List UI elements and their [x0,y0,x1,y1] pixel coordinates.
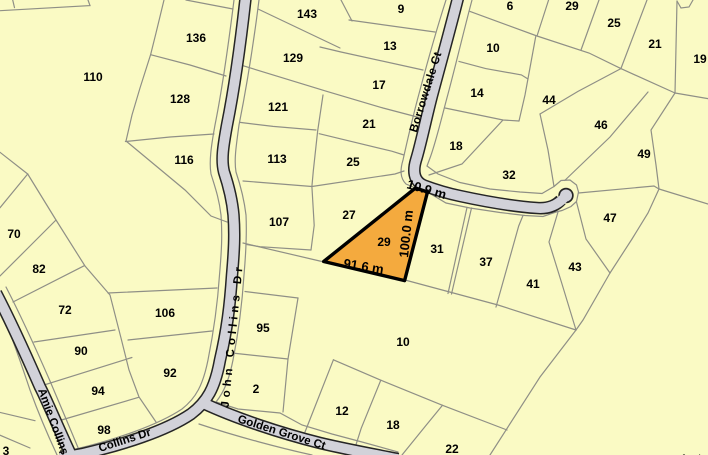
svg-text:121: 121 [268,100,288,114]
svg-text:95: 95 [256,321,270,335]
svg-text:3: 3 [3,444,10,455]
svg-text:31: 31 [430,242,444,256]
svg-text:92: 92 [163,366,177,380]
svg-text:82: 82 [32,262,46,276]
svg-text:9: 9 [398,2,405,16]
svg-text:12: 12 [335,404,349,418]
svg-text:113: 113 [267,152,287,166]
svg-text:143: 143 [297,7,317,21]
svg-text:25: 25 [607,16,621,30]
svg-text:29: 29 [377,235,391,249]
svg-text:17: 17 [372,78,386,92]
svg-text:29: 29 [565,0,579,13]
svg-text:70: 70 [7,227,21,241]
svg-text:25: 25 [346,155,360,169]
svg-text:10: 10 [396,335,410,349]
svg-text:116: 116 [174,153,194,167]
svg-text:18: 18 [449,139,463,153]
svg-text:128: 128 [170,92,190,106]
svg-text:41: 41 [526,277,540,291]
svg-text:21: 21 [362,117,376,131]
svg-text:46: 46 [594,118,608,132]
svg-text:98: 98 [97,423,111,437]
svg-text:43: 43 [568,260,582,274]
svg-text:14: 14 [470,86,484,100]
svg-text:44: 44 [542,93,556,107]
svg-text:110: 110 [83,70,103,84]
svg-text:27: 27 [342,208,356,222]
svg-text:6: 6 [507,0,514,13]
svg-text:129: 129 [283,51,303,65]
svg-text:2: 2 [253,382,260,396]
svg-text:94: 94 [91,384,105,398]
svg-text:47: 47 [603,211,617,225]
svg-text:106: 106 [155,306,175,320]
svg-text:90: 90 [74,344,88,358]
svg-text:107: 107 [269,215,289,229]
svg-text:49: 49 [637,147,651,161]
svg-text:22: 22 [445,442,459,455]
svg-text:37: 37 [479,255,493,269]
svg-text:21: 21 [648,37,662,51]
svg-text:72: 72 [58,303,72,317]
svg-text:18: 18 [386,418,400,432]
svg-text:13: 13 [383,39,397,53]
svg-text:32: 32 [502,168,516,182]
svg-text:136: 136 [186,31,206,45]
svg-text:10: 10 [486,41,500,55]
svg-text:19: 19 [693,52,707,66]
